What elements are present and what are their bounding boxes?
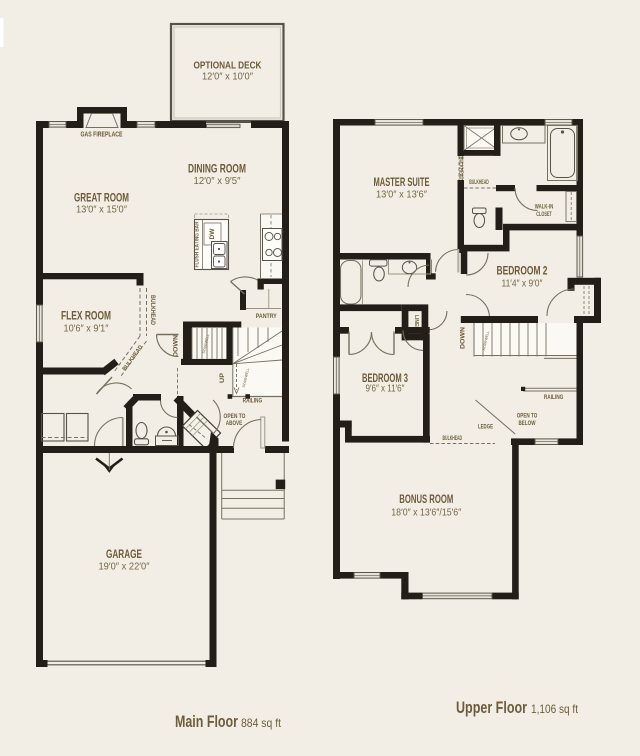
svg-text:DINING ROOM: DINING ROOM [188, 164, 246, 176]
svg-text:12′0″ x 9′5″: 12′0″ x 9′5″ [194, 175, 241, 187]
svg-text:BULKHEAD: BULKHEAD [443, 435, 463, 442]
svg-text:UP: UP [219, 373, 226, 383]
svg-text:11′4″ x 9′0″: 11′4″ x 9′0″ [502, 278, 543, 290]
svg-text:FLUSH EATING BAR: FLUSH EATING BAR [195, 222, 201, 268]
svg-text:BULKHEAD: BULKHEAD [458, 157, 464, 180]
svg-text:CLOSET: CLOSET [536, 211, 552, 218]
svg-text:GAS FIREPLACE: GAS FIREPLACE [81, 130, 123, 139]
svg-text:Main Floor: Main Floor [175, 713, 238, 731]
svg-text:PANTRY: PANTRY [256, 313, 277, 320]
svg-text:BELOW: BELOW [519, 420, 536, 427]
svg-text:OPEN TO: OPEN TO [224, 413, 246, 420]
svg-text:LEDGE: LEDGE [478, 424, 493, 431]
svg-text:13′0″ x 13′6″: 13′0″ x 13′6″ [376, 189, 427, 201]
svg-text:WALK-IN: WALK-IN [535, 204, 554, 211]
svg-text:BONUS ROOM: BONUS ROOM [399, 494, 453, 506]
svg-text:MASTER SUITE: MASTER SUITE [374, 177, 430, 189]
svg-text:OPEN TO: OPEN TO [517, 413, 538, 420]
svg-text:1,106 sq ft: 1,106 sq ft [531, 702, 579, 716]
svg-text:BULKHEAD: BULKHEAD [469, 179, 489, 186]
svg-text:10′6″ x 9′1″: 10′6″ x 9′1″ [64, 323, 109, 335]
svg-text:19′0″ x 22′0″: 19′0″ x 22′0″ [99, 561, 150, 573]
svg-text:BEDROOM 2: BEDROOM 2 [497, 266, 548, 278]
svg-text:13′0″ x 15′0″: 13′0″ x 15′0″ [76, 204, 127, 216]
svg-text:9′6″ x 11′6″: 9′6″ x 11′6″ [366, 383, 405, 395]
svg-text:OPTIONAL DECK: OPTIONAL DECK [194, 61, 263, 72]
svg-text:DOWN: DOWN [173, 334, 180, 357]
svg-text:RAILING: RAILING [243, 398, 263, 405]
svg-text:DOWN: DOWN [460, 326, 467, 349]
svg-text:12′0″ x 10′0″: 12′0″ x 10′0″ [202, 72, 253, 83]
svg-text:884 sq ft: 884 sq ft [241, 716, 282, 730]
svg-text:FLEX ROOM: FLEX ROOM [61, 311, 111, 323]
svg-text:DW: DW [209, 228, 216, 239]
svg-text:Upper Floor: Upper Floor [456, 699, 527, 717]
svg-text:GARAGE: GARAGE [106, 549, 142, 561]
svg-text:RAILING: RAILING [544, 394, 564, 401]
svg-text:18′0″ x 13′6″/15′6″: 18′0″ x 13′6″/15′6″ [391, 507, 461, 519]
svg-text:ABOVE: ABOVE [226, 420, 243, 427]
svg-text:BULKHEAD: BULKHEAD [149, 295, 155, 326]
